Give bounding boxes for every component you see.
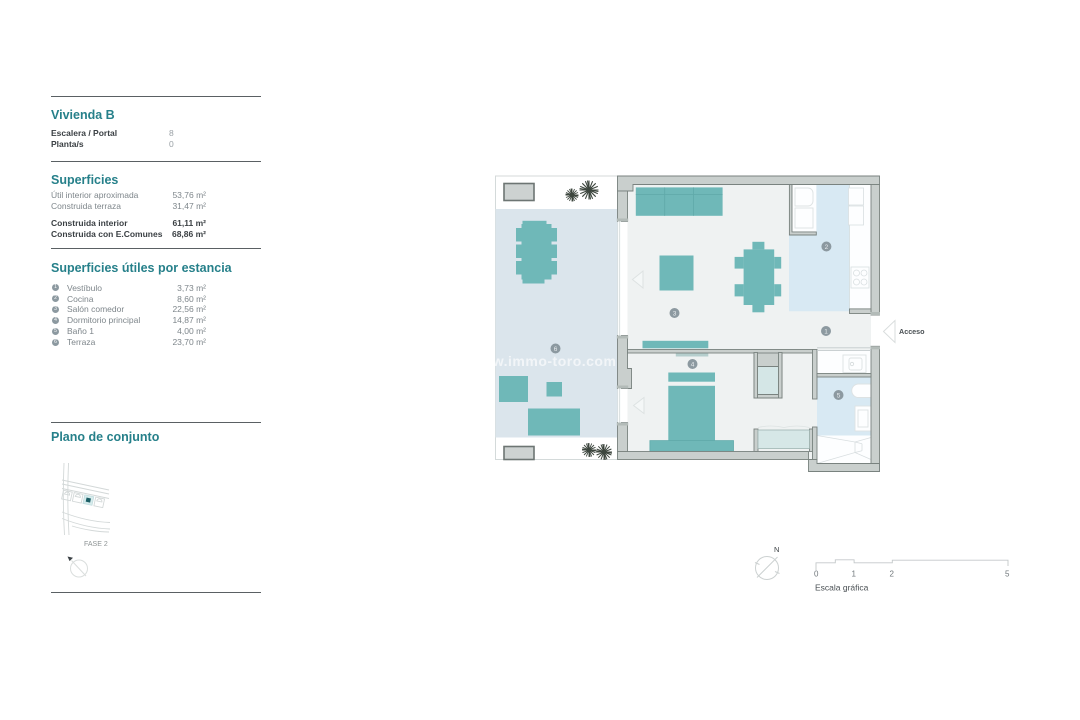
svg-text:6: 6 — [554, 346, 558, 353]
svg-text:Escala gráfica: Escala gráfica — [815, 583, 869, 593]
svg-text:5: 5 — [1005, 570, 1010, 579]
svg-text:2: 2 — [825, 244, 829, 251]
svg-text:Acceso: Acceso — [899, 327, 925, 336]
svg-text:0: 0 — [814, 570, 819, 579]
svg-text:N: N — [774, 545, 779, 554]
svg-text:4: 4 — [691, 362, 695, 369]
svg-text:3: 3 — [673, 311, 677, 318]
svg-text:1: 1 — [824, 329, 828, 336]
svg-text:5: 5 — [837, 393, 841, 400]
svg-text:2: 2 — [890, 570, 895, 579]
svg-text:www.immo-toro.com: www.immo-toro.com — [469, 353, 616, 369]
svg-text:1: 1 — [852, 570, 857, 579]
